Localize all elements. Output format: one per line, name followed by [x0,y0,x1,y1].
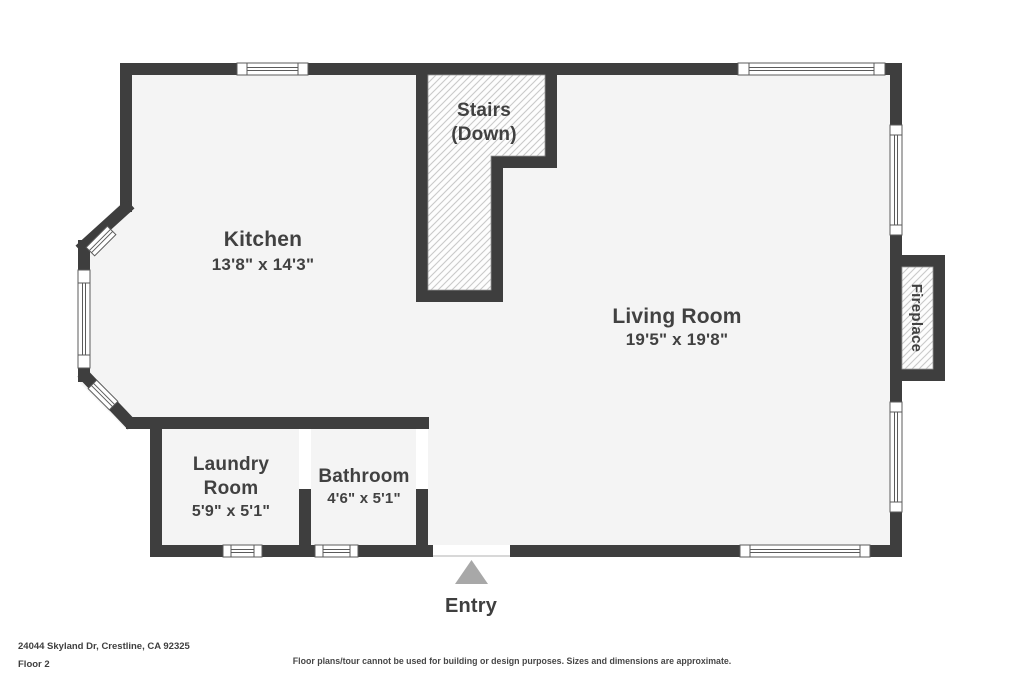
window-bathroom-bottom [315,545,358,557]
window-living-right-upper [890,125,902,235]
floorplan-canvas: Kitchen 13'8" x 14'3" Living Room 19'5" … [0,0,1024,683]
fireplace-label: Fireplace [908,284,925,353]
entry-opening [433,545,510,557]
window-laundry-bottom [223,545,262,557]
window-living-bottom [740,545,870,557]
bathroom-label: Bathroom [318,466,409,487]
entry-arrow-icon [455,560,488,584]
disclaimer-text: Floor plans/tour cannot be used for buil… [0,656,1024,666]
wall-kitchen-bottom [126,417,429,429]
window-living-top [738,63,885,75]
window-bay-center [78,270,90,368]
door-opening-bathroom [416,429,428,489]
laundry-room-dimensions: 5'9" x 5'1" [192,503,270,520]
wall-stairs-bottom [416,290,503,302]
door-opening-laundry [299,429,311,489]
kitchen-label: Kitchen [224,228,302,251]
window-living-right-lower [890,402,902,512]
stairs-label-line2: (Down) [451,124,517,145]
wall-stairs-left [416,63,428,302]
property-address: 24044 Skyland Dr, Crestline, CA 92325 [18,641,190,652]
wall-stairs-right-wide [545,63,557,168]
laundry-room-label-line2: Room [204,478,259,499]
living-room-dimensions: 19'5" x 19'8" [626,330,728,349]
bathroom-dimensions: 4'6" x 5'1" [327,490,401,507]
kitchen-dimensions: 13'8" x 14'3" [212,255,314,274]
laundry-room-label-line1: Laundry [193,454,270,475]
wall-laundry-left [150,417,162,557]
entry-label: Entry [445,595,498,617]
window-kitchen-top [237,63,308,75]
living-room-label: Living Room [612,305,741,328]
wall-stairs-right-narrow [491,156,503,302]
floorplan-page: Kitchen 13'8" x 14'3" Living Room 19'5" … [0,0,1024,683]
stairs-label-line1: Stairs [457,100,511,121]
wall-left-upper [120,63,132,212]
